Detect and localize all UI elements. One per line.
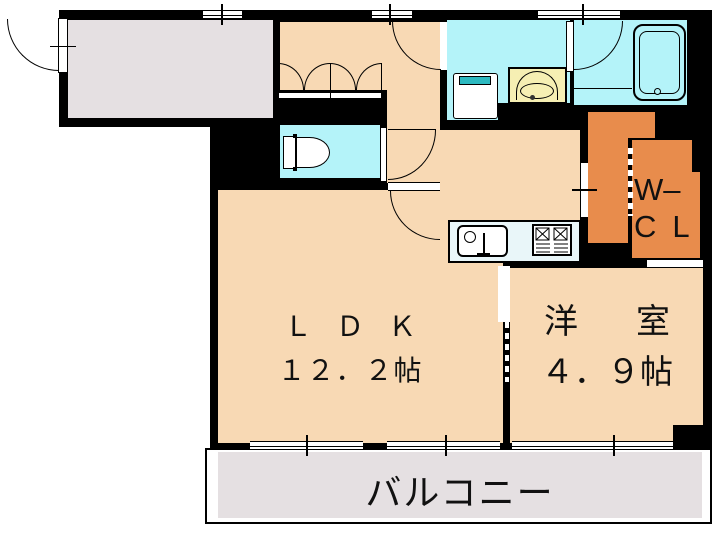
sink-drain	[464, 231, 476, 243]
ldk-label: ＬＤＫ	[250, 305, 450, 345]
ldk-area: １２．２帖	[250, 349, 450, 389]
wcl-label-block: W– CL	[634, 171, 706, 245]
ldk-door-opening	[388, 182, 440, 191]
toilet-door	[380, 127, 387, 182]
vanity-bowl	[520, 83, 554, 99]
wall-segment	[673, 425, 712, 448]
sink-faucet	[483, 233, 485, 255]
bathroom-floor-line	[574, 88, 632, 89]
balcony-window	[512, 441, 673, 450]
wcl-label-line2: CL	[634, 208, 706, 245]
window-tick	[582, 4, 584, 25]
stove-icon	[532, 224, 572, 256]
closet-strip-top	[628, 112, 655, 138]
balcony-window	[387, 441, 500, 450]
ldk-western-opening	[498, 266, 510, 322]
room-entry-hall	[68, 20, 273, 118]
window-tick	[389, 4, 391, 25]
wall-segment	[498, 103, 570, 120]
western-area: ４．９帖	[512, 345, 702, 393]
floorplan: バルコニー ＬＤＫ １２．２帖 洋 室 ４．９帖 W– CL	[0, 0, 721, 538]
washing-machine-tap	[459, 76, 491, 85]
window-tick	[613, 435, 615, 456]
window-tick	[445, 435, 447, 456]
closet-strip	[588, 112, 628, 243]
western-label-block: 洋 室 ４．９帖	[512, 294, 702, 393]
vanity-drain	[530, 95, 535, 100]
wcl-folding-door-dashes	[628, 148, 633, 216]
closet-jamb	[330, 63, 331, 93]
window-tick	[306, 435, 308, 456]
bathroom-door	[566, 21, 574, 72]
window	[372, 10, 412, 19]
toilet-icon	[283, 136, 296, 169]
balcony-label: バルコニー	[218, 464, 702, 516]
bathtub-rim	[639, 31, 680, 94]
closet-jamb	[278, 63, 279, 93]
western-label: 洋 室	[512, 294, 702, 343]
washroom-door-opening	[440, 22, 447, 70]
closet-door-divider	[330, 93, 331, 100]
bathtub-drain	[654, 88, 661, 95]
sliding-door-dashes	[505, 322, 509, 382]
ldk-label-block: ＬＤＫ １２．２帖	[250, 305, 450, 389]
entrance-door-arc	[7, 19, 59, 71]
sink-faucet-base	[477, 253, 490, 256]
window-tick	[221, 4, 223, 25]
wcl-opening	[647, 260, 703, 267]
window	[538, 10, 620, 19]
window-tick	[572, 189, 597, 191]
closet-door-panels	[278, 92, 382, 99]
closet-jamb	[381, 63, 382, 93]
wcl-label-line1: W–	[634, 171, 706, 208]
